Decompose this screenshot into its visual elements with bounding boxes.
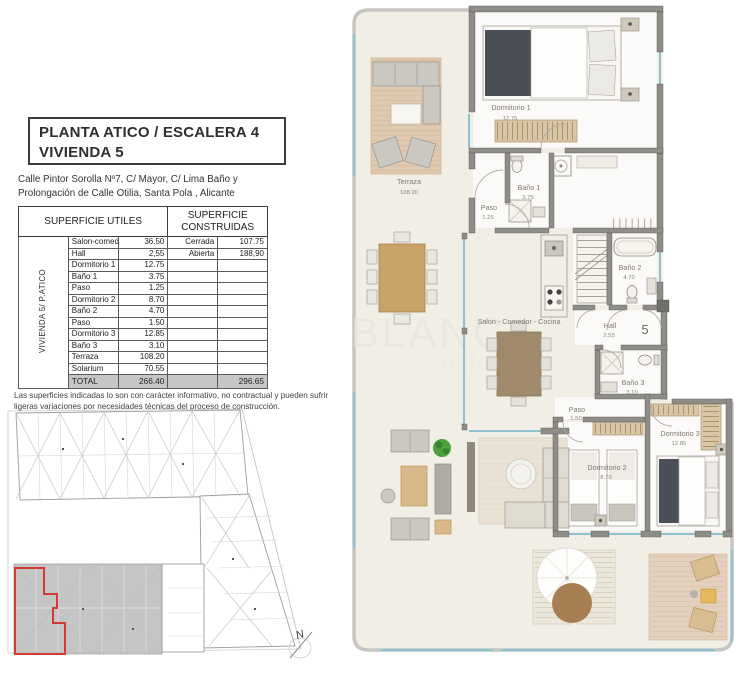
room-label-dormitorio-2: Dormitorio 2 — [587, 463, 626, 472]
room-label-salon: Salon - Comedor - Cocina — [477, 317, 560, 326]
table-side-label: VIVIENDA 5/ P.ATICO — [38, 269, 49, 353]
table-side-cell: VIVIENDA 5/ P.ATICO — [19, 237, 69, 389]
room-area-dormitorio-3: 12.85 — [672, 441, 687, 447]
address: Calle Pintor Sorolla Nº7, C/ Mayor, C/ L… — [18, 173, 318, 201]
terrace-loungers — [533, 548, 615, 624]
page-title: PLANTA ATICO / ESCALERA 4 VIVIENDA 5 — [28, 117, 286, 165]
room-area-bano-3: 3.10 — [626, 390, 638, 396]
room-area-terraza: 108.20 — [400, 190, 419, 196]
site-highlight-block — [14, 564, 162, 654]
table-header-row: SUPERFICIE UTILES SUPERFICIE CONSTRUIDAS — [19, 207, 268, 237]
plan-sheet: PLANTA ATICO / ESCALERA 4 VIVIENDA 5 Cal… — [0, 0, 736, 673]
total-label: TOTAL — [68, 375, 118, 389]
table-row: VIVIENDA 5/ P.ATICO Salon-comedor-cocina… — [19, 237, 268, 249]
room-label-bano-2: Baño 2 — [619, 263, 642, 272]
address-line-2: Prolongación de Calle Otilia, Santa Pola… — [18, 187, 318, 201]
room-label-paso-1: Paso — [481, 203, 497, 212]
room-area-bano-2: 4.70 — [623, 275, 635, 281]
room-area-dormitorio-1: 12.75 — [503, 116, 518, 122]
room-label-bano-3: Baño 3 — [622, 378, 645, 387]
total-utiles: 266.40 — [118, 375, 168, 389]
room-area-paso-1: 1.25 — [482, 215, 494, 221]
terrace-lounge-set — [371, 58, 441, 174]
floor-plan: BLANCA estate — [345, 4, 736, 664]
north-label: N — [294, 628, 305, 642]
unit-number: 5 — [641, 322, 648, 337]
terrace-rug-set — [649, 554, 727, 640]
disclaimer-line-1: Las superficies indicadas lo son con car… — [14, 391, 346, 402]
column-header-utiles: SUPERFICIE UTILES — [19, 207, 168, 237]
room-area-hall: 2.55 — [603, 333, 615, 339]
room-label-paso-2: Paso — [569, 405, 585, 414]
room-label-dormitorio-3: Dormitorio 3 — [660, 429, 699, 438]
address-line-1: Calle Pintor Sorolla Nº7, C/ Mayor, C/ L… — [18, 173, 318, 187]
room-label-hall: Hall — [604, 321, 617, 330]
room-area-dormitorio-2: 8.70 — [600, 475, 612, 481]
total-construidas: 296.65 — [218, 375, 268, 389]
room-label-dormitorio-1: Dormitorio 1 — [491, 103, 530, 112]
surface-table: SUPERFICIE UTILES SUPERFICIE CONSTRUIDAS… — [18, 206, 268, 389]
room-area-bano-1: 3.75 — [522, 195, 534, 201]
room-area-salon: 36.50 — [507, 332, 522, 338]
room-label-terraza: Terraza — [397, 177, 421, 186]
column-header-construidas: SUPERFICIE CONSTRUIDAS — [168, 207, 268, 237]
room-label-bano-1: Baño 1 — [518, 183, 541, 192]
room-area-paso-2: 1.50 — [570, 416, 582, 422]
title-line-2: VIVIENDA 5 — [39, 143, 284, 163]
title-line-1: PLANTA ATICO / ESCALERA 4 — [39, 123, 284, 143]
site-key-plan: N — [2, 408, 338, 670]
kitchen — [541, 235, 567, 317]
